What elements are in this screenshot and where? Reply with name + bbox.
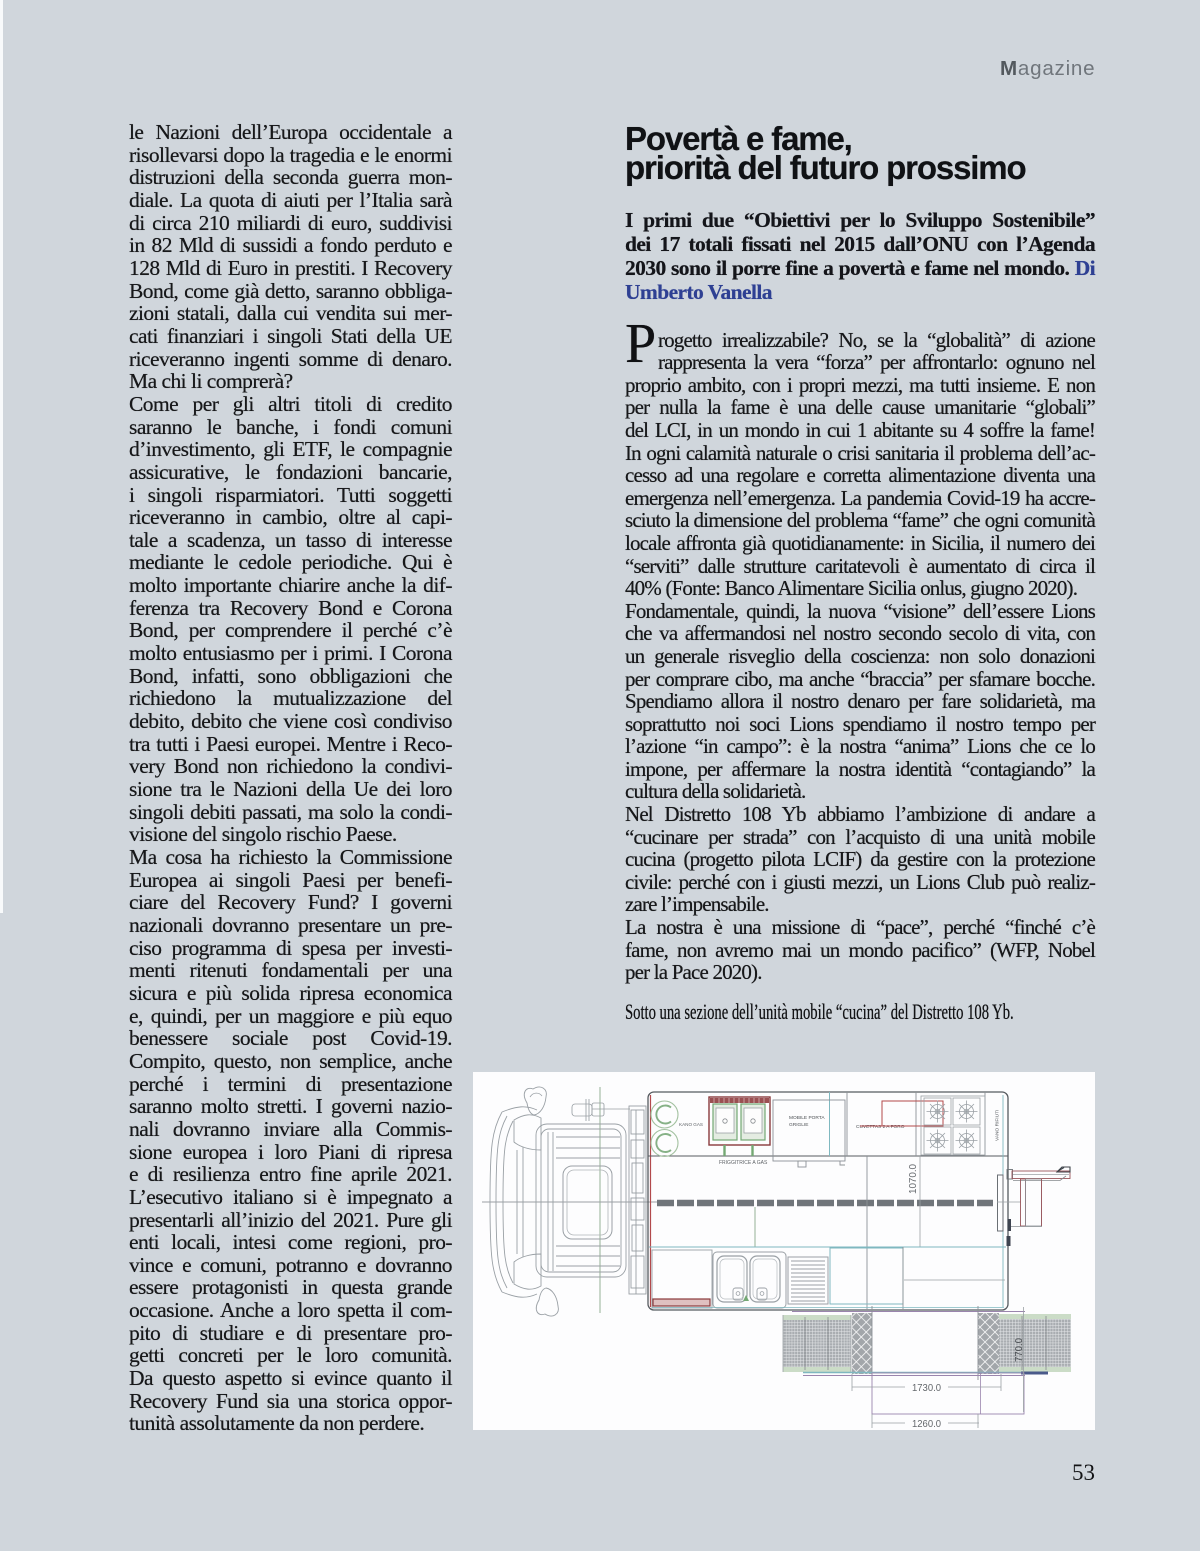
svg-text:MOBILE PORTA: MOBILE PORTA bbox=[789, 1115, 825, 1121]
svg-text:FRIGGITRICE A GAS: FRIGGITRICE A GAS bbox=[719, 1160, 768, 1166]
svg-text:GRIGLIE: GRIGLIE bbox=[789, 1122, 808, 1128]
svg-text:1730.0: 1730.0 bbox=[912, 1382, 941, 1394]
svg-text:VANO RIFIUTI: VANO RIFIUTI bbox=[995, 1110, 1001, 1141]
svg-text:CUVETTAS 2 A FORO: CUVETTAS 2 A FORO bbox=[856, 1124, 905, 1130]
svg-text:1260.0: 1260.0 bbox=[912, 1418, 941, 1430]
svg-text:1070.0: 1070.0 bbox=[907, 1164, 919, 1194]
svg-text:KANO GAS: KANO GAS bbox=[679, 1122, 703, 1127]
